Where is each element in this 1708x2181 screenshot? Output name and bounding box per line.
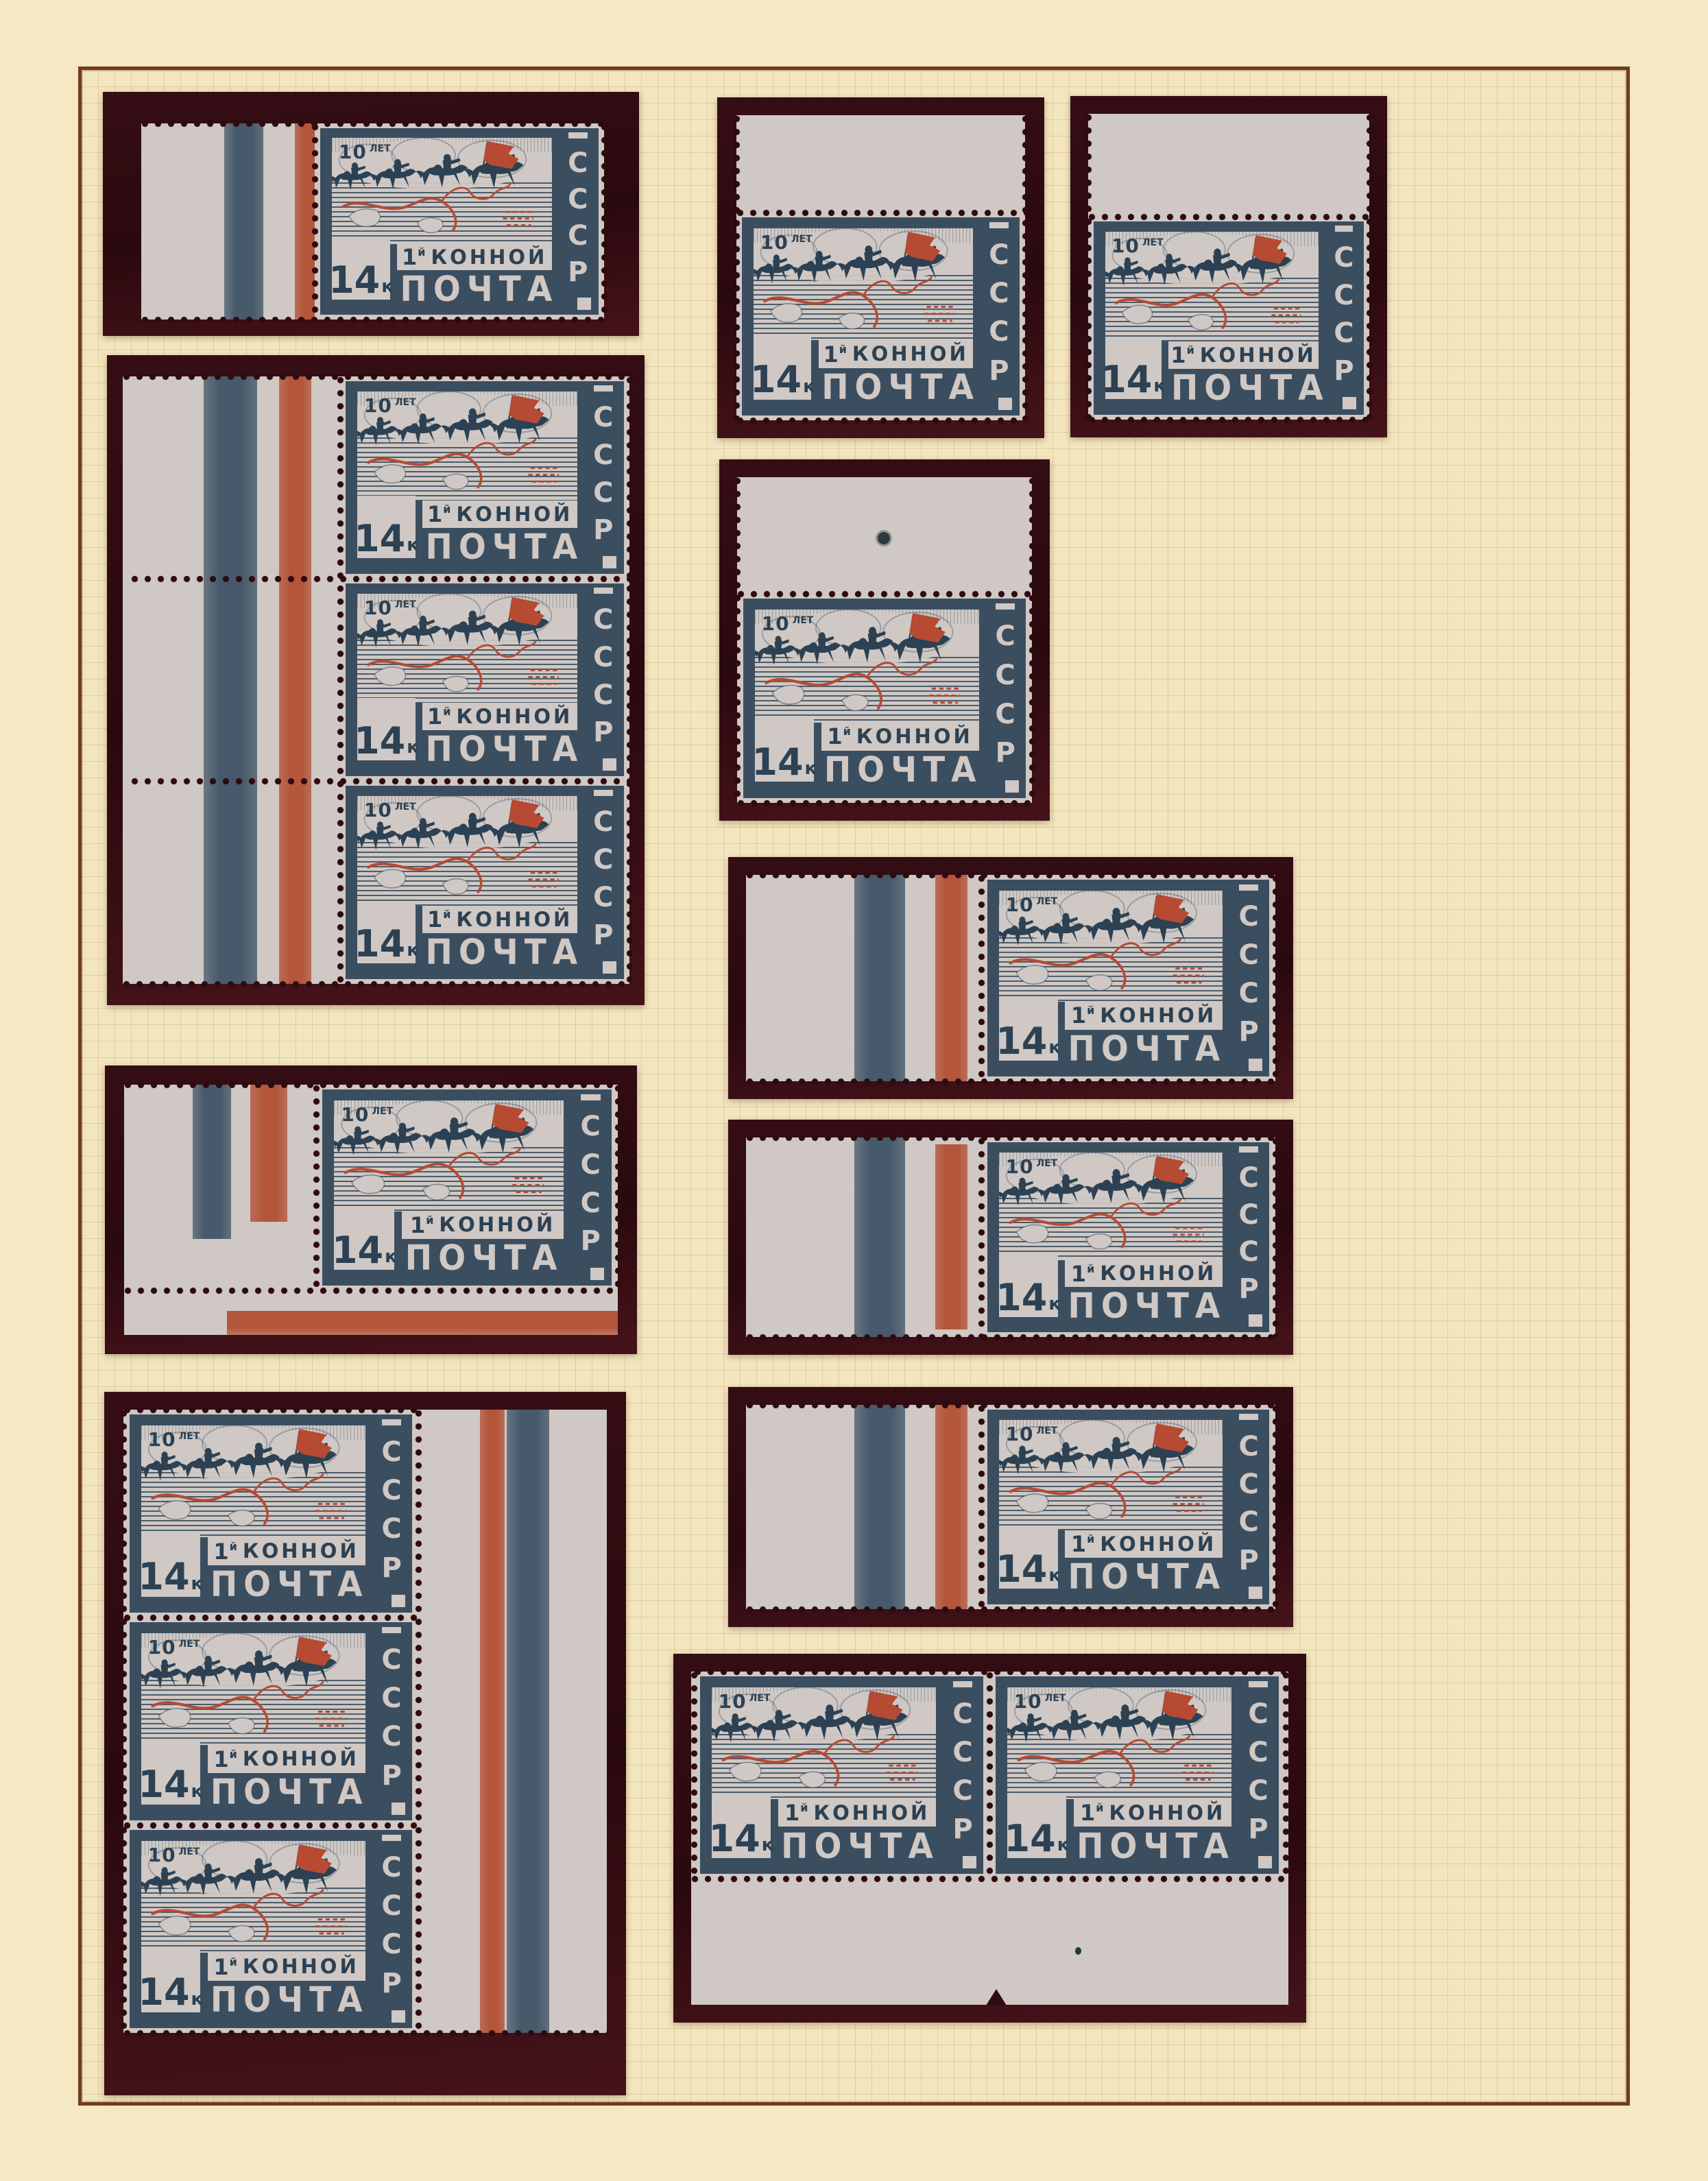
perforation-row (131, 575, 629, 583)
cccp-letters: СССР (1234, 884, 1264, 1071)
cavalry-number: 1 (427, 706, 442, 727)
cccp-macron-bar (1335, 226, 1354, 232)
perforation-row (746, 1401, 1275, 1409)
anniversary-word: ЛЕТ (791, 234, 813, 245)
denomination-box: 14к (141, 1740, 200, 1805)
cavalry-caption: 1йКОННОЙ (1168, 341, 1319, 369)
cavalry-caption: 1йКОННОЙ (208, 1953, 365, 1981)
postage-stamp: 10ЛЕТ1йКОННОЙ14кПОЧТАСССР (981, 1405, 1275, 1609)
cccp-letter: С (381, 1517, 401, 1541)
denomination-box: 14к (334, 1206, 394, 1270)
stamp-paper-block: 10ЛЕТ1йКОННОЙ14кПОЧТАСССР (124, 1085, 618, 1335)
perforation-row (124, 1081, 618, 1089)
post-label: ПОЧТА (1068, 1032, 1227, 1067)
anniversary-number: 10 (148, 1844, 176, 1866)
perforation-row (746, 1134, 1275, 1142)
cccp-letter: С (989, 320, 1009, 344)
anniversary-number: 10 (364, 394, 392, 417)
cccp-letter: Р (989, 359, 1009, 383)
denomination-value: 14 (996, 1026, 1047, 1057)
cavalry-number: 1 (213, 1541, 228, 1563)
perforation-column (1366, 114, 1373, 420)
margin-color-bar-blue (854, 1137, 905, 1337)
margin-color-bar-red (250, 1085, 287, 1222)
cccp-corner-square (998, 398, 1012, 410)
album-page: 10ЛЕТ1йКОННОЙ14кПОЧТАСССР 10ЛЕТ1йКОННОЙ1… (0, 0, 1708, 2181)
stamp-mount: 10ЛЕТ1йКОННОЙ14кПОЧТАСССР (728, 1387, 1293, 1627)
anniversary-word: ЛЕТ (179, 1431, 200, 1442)
cccp-letter: Р (593, 721, 613, 744)
stamp-vignette: 10ЛЕТ (999, 891, 1223, 1002)
postage-stamp: 10ЛЕТ1йКОННОЙ14кПОЧТАСССР (981, 1137, 1275, 1337)
perforation-row (746, 1334, 1275, 1341)
denomination-value: 14 (996, 1554, 1047, 1584)
cccp-macron-bar (581, 1094, 601, 1100)
stamp-mount: 10ЛЕТ1йКОННОЙ14кПОЧТАСССР (719, 459, 1050, 821)
cccp-corner-square (603, 758, 616, 771)
postage-stamp: 10ЛЕТ1йКОННОЙ14кПОЧТАСССР (340, 579, 629, 781)
cccp-letter: С (381, 1687, 401, 1710)
cccp-macron-bar (568, 132, 587, 138)
cccp-letter: С (1248, 1702, 1268, 1726)
cccp-letter: С (995, 703, 1015, 726)
cccp-letter: Р (593, 924, 613, 947)
postage-stamp: 10ЛЕТ1йКОННОЙ14кПОЧТАСССР (123, 1825, 418, 2033)
cavalry-number: 1 (1170, 344, 1186, 366)
perforation-column (601, 123, 608, 320)
cavalry-ordinal: й (1087, 1534, 1094, 1545)
anniversary-word: ЛЕТ (179, 1846, 200, 1857)
cavalry-ordinal: й (843, 726, 851, 737)
cccp-letter: С (593, 406, 613, 429)
perforation-row (123, 373, 629, 381)
cccp-letter: Р (568, 261, 588, 284)
perforation-row (123, 1406, 418, 1414)
cavalry-word: КОННОЙ (431, 248, 547, 267)
post-label: ПОЧТА (1171, 371, 1330, 406)
cavalry-number: 1 (827, 725, 842, 747)
cccp-letter: С (593, 886, 613, 909)
perforation-row (124, 1287, 618, 1294)
cccp-letter: С (989, 282, 1009, 305)
cccp-letter: С (593, 848, 613, 871)
stamp-paper-block: 10ЛЕТ1йКОННОЙ14кПОЧТАСССР (737, 477, 1032, 803)
denomination-value: 14 (354, 929, 405, 959)
cccp-letter: С (581, 1192, 601, 1215)
anniversary-number: 10 (148, 1428, 176, 1451)
denomination-unit: к (191, 1783, 204, 1800)
cavalry-number: 1 (427, 908, 442, 930)
perforation-row (736, 417, 1025, 424)
stamp-mount: 10ЛЕТ1йКОННОЙ14кПОЧТАСССР 10ЛЕТ1йКОННОЙ1… (104, 1392, 626, 2095)
cccp-macron-bar (1239, 884, 1258, 891)
denomination-box: 14к (141, 1532, 200, 1597)
punch-hole (878, 532, 890, 544)
cavalry-word: КОННОЙ (813, 1803, 930, 1823)
postage-stamp: 10ЛЕТ1йКОННОЙ14кПОЧТАСССР (694, 1672, 989, 1879)
cavalry-word: КОННОЙ (1100, 1264, 1216, 1284)
cavalry-ordinal: й (1087, 1005, 1094, 1016)
cccp-letters: СССР (990, 603, 1021, 793)
perforation-row (131, 778, 629, 785)
cccp-letters: СССР (376, 1835, 407, 2023)
cavalry-ordinal: й (230, 1541, 237, 1552)
cccp-letter: С (995, 625, 1015, 648)
anniversary-label: 10ЛЕТ (148, 1636, 200, 1659)
post-label: ПОЧТА (425, 530, 584, 565)
stamp-paper-block: 10ЛЕТ1йКОННОЙ14кПОЧТАСССР 10ЛЕТ1йКОННОЙ1… (123, 376, 629, 984)
anniversary-label: 10ЛЕТ (148, 1428, 200, 1451)
postage-stamp: 10ЛЕТ1йКОННОЙ14кПОЧТАСССР (316, 1085, 618, 1290)
denomination-unit: к (385, 1248, 397, 1266)
cccp-letter: С (568, 188, 588, 211)
perforation-column (1022, 115, 1029, 420)
denomination-unit: к (191, 1575, 204, 1593)
cccp-letter: С (1334, 322, 1354, 345)
perforation-column (311, 123, 319, 320)
stamp-vignette: 10ЛЕТ (712, 1687, 937, 1799)
cavalry-number: 1 (1071, 1263, 1086, 1285)
denomination-value: 14 (138, 1562, 189, 1592)
denomination-value: 14 (709, 1824, 760, 1854)
stamp-vignette: 10ЛЕТ (141, 1633, 365, 1746)
cccp-corner-square (392, 1595, 405, 1607)
denomination-value: 14 (751, 747, 803, 778)
cccp-letter: С (593, 481, 613, 505)
cavalry-number: 1 (1071, 1004, 1086, 1026)
cccp-letter: Р (1239, 1549, 1259, 1572)
stamp-vignette: 10ЛЕТ (1105, 232, 1319, 341)
denomination-value: 14 (996, 1283, 1047, 1313)
stamp-mount: 10ЛЕТ1йКОННОЙ14кПОЧТАСССР 10ЛЕТ1йКОННОЙ1… (673, 1654, 1306, 2023)
stamp-mount: 10ЛЕТ1йКОННОЙ14кПОЧТАСССР (105, 1065, 637, 1354)
anniversary-label: 10ЛЕТ (339, 141, 391, 163)
cccp-letter: Р (581, 1229, 601, 1253)
cavalry-number: 1 (427, 503, 442, 525)
perforation-column (1282, 1672, 1290, 1879)
denomination-box: 14к (357, 496, 415, 558)
margin-color-bar-blue (507, 1410, 549, 2033)
anniversary-label: 10ЛЕТ (1006, 1155, 1058, 1178)
anniversary-label: 10ЛЕТ (364, 597, 416, 619)
anniversary-number: 10 (364, 799, 392, 821)
cccp-letter: С (1239, 905, 1259, 928)
postage-stamp: 10ЛЕТ1йКОННОЙ14кПОЧТАСССР (123, 1617, 418, 1825)
postage-stamp: 10ЛЕТ1йКОННОЙ14кПОЧТАСССР (1088, 217, 1369, 420)
denomination-unit: к (1048, 1295, 1061, 1313)
anniversary-label: 10ЛЕТ (760, 231, 813, 254)
stamp-paper-block: 10ЛЕТ1йКОННОЙ14кПОЧТАСССР 10ЛЕТ1йКОННОЙ1… (691, 1672, 1288, 2005)
cccp-letter: Р (381, 1972, 401, 1995)
stamp-paper-block: 10ЛЕТ1йКОННОЙ14кПОЧТАСССР (1088, 114, 1369, 420)
stamp-vignette: 10ЛЕТ (334, 1100, 563, 1212)
postage-stamp: 10ЛЕТ1йКОННОЙ14кПОЧТАСССР (340, 781, 629, 984)
stamp-mount: 10ЛЕТ1йКОННОЙ14кПОЧТАСССР (103, 92, 639, 336)
cccp-macron-bar (996, 603, 1015, 610)
anniversary-number: 10 (719, 1690, 747, 1713)
cccp-macron-bar (989, 222, 1008, 228)
cavalry-word: КОННОЙ (456, 910, 573, 930)
cavalry-caption: 1йКОННОЙ (422, 501, 577, 528)
cccp-corner-square (590, 1268, 604, 1280)
cccp-letter: С (952, 1779, 972, 1803)
anniversary-number: 10 (762, 612, 790, 635)
denomination-value: 14 (138, 1770, 189, 1800)
stamp-mount: 10ЛЕТ1йКОННОЙ14кПОЧТАСССР (728, 1120, 1293, 1355)
cavalry-ordinal: й (1187, 345, 1194, 356)
cccp-corner-square (1005, 780, 1019, 793)
cavalry-number: 1 (213, 1748, 228, 1770)
anniversary-label: 10ЛЕТ (364, 799, 416, 821)
cavalry-ordinal: й (426, 1215, 433, 1226)
torn-notch (986, 1989, 1007, 2005)
cavalry-number: 1 (213, 1956, 228, 1978)
post-label: ПОЧТА (405, 1241, 564, 1276)
denomination-box: 14к (999, 997, 1058, 1061)
cccp-corner-square (1249, 1059, 1262, 1071)
cccp-letter: Р (995, 741, 1015, 764)
denomination-unit: к (191, 1990, 204, 2008)
stamp-mount: 10ЛЕТ1йКОННОЙ14кПОЧТАСССР (717, 97, 1044, 438)
paper-speck (1075, 1947, 1081, 1955)
cavalry-ordinal: й (443, 909, 450, 920)
cccp-corner-square (1343, 397, 1356, 409)
anniversary-number: 10 (1006, 1423, 1034, 1445)
cavalry-caption: 1йКОННОЙ (397, 244, 552, 271)
denomination-value: 14 (332, 1236, 383, 1266)
cccp-macron-bar (382, 1419, 401, 1425)
perforation-column (614, 1085, 622, 1290)
stamp-vignette: 10ЛЕТ (357, 391, 577, 501)
cccp-letter: Р (1248, 1818, 1268, 1841)
cccp-letter: С (568, 224, 588, 248)
cavalry-number: 1 (823, 344, 838, 365)
cccp-letter: С (1239, 982, 1259, 1005)
perforation-column (626, 376, 634, 984)
perforation-row (123, 2029, 607, 2037)
cccp-letter: С (593, 444, 613, 467)
post-label: ПОЧТА (211, 1983, 369, 2018)
cavalry-ordinal: й (230, 1749, 237, 1760)
cavalry-ordinal: й (1087, 1264, 1094, 1275)
cavalry-ordinal: й (839, 344, 847, 355)
postage-stamp: 10ЛЕТ1йКОННОЙ14кПОЧТАСССР (737, 594, 1032, 803)
perforation-row (141, 316, 604, 324)
post-label: ПОЧТА (211, 1775, 369, 1810)
margin-color-bar-blue (224, 123, 263, 320)
cavalry-number: 1 (1080, 1802, 1095, 1824)
cccp-letter: Р (1239, 1277, 1259, 1301)
stamp-paper-block: 10ЛЕТ1йКОННОЙ14кПОЧТАСССР (746, 875, 1275, 1081)
perforation-row (746, 1606, 1275, 1613)
stamp-vignette: 10ЛЕТ (755, 610, 979, 723)
cavalry-word: КОННОЙ (1200, 346, 1316, 365)
perforation-column (690, 1672, 698, 1879)
anniversary-word: ЛЕТ (1142, 237, 1164, 248)
cccp-letter: С (593, 810, 613, 834)
margin-color-bar-blue (204, 376, 257, 984)
perforation-column (1272, 875, 1279, 1081)
cavalry-word: КОННОЙ (1109, 1803, 1225, 1823)
stamp-vignette: 10ЛЕТ (141, 1425, 365, 1538)
margin-color-bar-red (935, 1405, 967, 1609)
perforation-column (734, 477, 741, 803)
cavalry-word: КОННОЙ (243, 1541, 359, 1561)
denomination-box: 14к (332, 239, 389, 300)
cavalry-ordinal: й (443, 504, 450, 515)
denomination-unit: к (803, 378, 815, 396)
perforation-row (141, 120, 604, 128)
margin-color-bar-red (935, 1144, 967, 1329)
denomination-box: 14к (1007, 1794, 1066, 1858)
cccp-letter: С (568, 152, 588, 175)
cccp-macron-bar (382, 1627, 401, 1633)
cavalry-caption: 1йКОННОЙ (422, 703, 577, 730)
anniversary-number: 10 (1014, 1690, 1042, 1713)
perforation-column (337, 376, 344, 984)
perforation-row (123, 1614, 418, 1622)
perforation-column (313, 1085, 320, 1290)
cavalry-caption: 1йКОННОЙ (778, 1799, 937, 1827)
cavalry-word: КОННОЙ (856, 727, 973, 747)
denomination-box: 14к (357, 698, 415, 760)
post-label: ПОЧТА (425, 732, 584, 767)
denomination-box: 14к (754, 335, 811, 400)
anniversary-word: ЛЕТ (793, 615, 814, 626)
cccp-letter: С (381, 1479, 401, 1502)
perforation-column (978, 875, 985, 1081)
cccp-letter: С (1248, 1741, 1268, 1764)
cccp-letters: СССР (588, 790, 618, 974)
post-label: ПОЧТА (1076, 1829, 1235, 1864)
denomination-unit: к (1048, 1567, 1061, 1584)
stamp-vignette: 10ЛЕТ (332, 138, 552, 243)
anniversary-number: 10 (1111, 234, 1140, 257)
cavalry-word: КОННОЙ (456, 707, 573, 727)
cavalry-caption: 1йКОННОЙ (208, 1537, 365, 1565)
perforation-column (1272, 1405, 1279, 1609)
cccp-letter: С (952, 1741, 972, 1764)
anniversary-word: ЛЕТ (1036, 896, 1057, 907)
anniversary-label: 10ЛЕТ (148, 1844, 200, 1866)
perforation-column (978, 1405, 985, 1609)
stamp-paper-block: 10ЛЕТ1йКОННОЙ14кПОЧТАСССР 10ЛЕТ1йКОННОЙ1… (123, 1410, 607, 2033)
denomination-unit: к (805, 760, 817, 778)
cccp-letter: С (952, 1702, 972, 1726)
cccp-corner-square (392, 2010, 405, 2023)
cccp-letters: СССР (1234, 1146, 1264, 1327)
denomination-unit: к (1057, 1836, 1070, 1854)
cccp-letters: СССР (376, 1419, 407, 1607)
cavalry-caption: 1йКОННОЙ (208, 1745, 365, 1773)
cccp-macron-bar (594, 385, 612, 391)
cccp-letters: СССР (1242, 1681, 1273, 1868)
perforation-row (123, 1822, 418, 1829)
anniversary-word: ЛЕТ (1045, 1693, 1066, 1704)
anniversary-number: 10 (364, 597, 392, 619)
anniversary-label: 10ЛЕТ (1014, 1690, 1066, 1713)
cavalry-word: КОННОЙ (439, 1215, 555, 1235)
cccp-letters: СССР (588, 385, 618, 568)
margin-color-bar-blue (854, 875, 905, 1081)
perforation-row (746, 1078, 1275, 1085)
denomination-unit: к (407, 738, 419, 756)
anniversary-label: 10ЛЕТ (762, 612, 814, 635)
stamp-vignette: 10ЛЕТ (141, 1841, 365, 1953)
margin-color-bar-blue (854, 1405, 905, 1609)
cccp-letter: С (381, 1648, 401, 1672)
denomination-unit: к (1153, 377, 1166, 395)
anniversary-label: 10ЛЕТ (1006, 1423, 1058, 1445)
cavalry-caption: 1йКОННОЙ (821, 723, 979, 751)
cccp-letter: С (1239, 1166, 1259, 1190)
denomination-unit: к (407, 536, 419, 554)
cccp-macron-bar (382, 1835, 401, 1841)
cavalry-number: 1 (784, 1802, 799, 1824)
cccp-letters: СССР (1329, 226, 1358, 409)
cavalry-caption: 1йКОННОЙ (422, 906, 577, 933)
cccp-letter: Р (952, 1818, 972, 1841)
postage-stamp: 10ЛЕТ1йКОННОЙ14кПОЧТАСССР (981, 875, 1275, 1081)
anniversary-number: 10 (339, 141, 367, 163)
anniversary-word: ЛЕТ (1036, 1158, 1057, 1169)
postage-stamp: 10ЛЕТ1йКОННОЙ14кПОЧТАСССР (736, 213, 1025, 420)
stamp-paper-block: 10ЛЕТ1йКОННОЙ14кПОЧТАСССР (736, 115, 1025, 420)
cccp-letter: С (1239, 1435, 1259, 1458)
perforation-row (1088, 213, 1369, 221)
cccp-letter: С (1239, 1473, 1259, 1496)
cccp-letter: Р (381, 1764, 401, 1787)
anniversary-word: ЛЕТ (179, 1639, 200, 1650)
cavalry-number: 1 (410, 1214, 425, 1236)
anniversary-word: ЛЕТ (395, 802, 416, 812)
post-label: ПОЧТА (211, 1567, 369, 1602)
anniversary-number: 10 (1006, 1155, 1034, 1178)
anniversary-label: 10ЛЕТ (719, 1690, 771, 1713)
cccp-letters: СССР (947, 1681, 978, 1868)
cccp-letter: С (581, 1153, 601, 1177)
cavalry-caption: 1йКОННОЙ (1065, 1530, 1223, 1558)
stamp-paper-block: 10ЛЕТ1йКОННОЙ14кПОЧТАСССР (746, 1137, 1275, 1337)
stamp-vignette: 10ЛЕТ (357, 594, 577, 703)
cccp-corner-square (603, 961, 616, 974)
margin-color-bar-red (279, 376, 311, 984)
cccp-letter: Р (1334, 359, 1354, 383)
cccp-letter: С (593, 684, 613, 707)
stamp-vignette: 10ЛЕТ (357, 796, 577, 906)
cccp-letters: СССР (1234, 1414, 1264, 1599)
cccp-corner-square (1249, 1314, 1262, 1327)
cccp-letter: С (1248, 1779, 1268, 1803)
cccp-letter: С (1239, 1510, 1259, 1534)
denomination-box: 14к (357, 901, 415, 964)
cavalry-word: КОННОЙ (852, 344, 969, 364)
cccp-letter: Р (593, 518, 613, 542)
denomination-value: 14 (354, 524, 405, 554)
perforation-row (746, 871, 1275, 879)
cccp-letters: СССР (563, 132, 593, 310)
cavalry-caption: 1йКОННОЙ (819, 340, 973, 368)
cccp-macron-bar (1239, 1146, 1258, 1153)
perforation-column (1085, 114, 1092, 420)
perforation-column (415, 1410, 422, 2033)
postage-stamp: 10ЛЕТ1йКОННОЙ14кПОЧТАСССР (315, 123, 604, 320)
postage-stamp: 10ЛЕТ1йКОННОЙ14кПОЧТАСССР (123, 1410, 418, 1617)
stamp-paper-block: 10ЛЕТ1йКОННОЙ14кПОЧТАСССР (746, 1405, 1275, 1609)
denomination-unit: к (407, 941, 419, 959)
margin-color-bar-blue (193, 1085, 231, 1239)
cccp-macron-bar (594, 588, 612, 594)
